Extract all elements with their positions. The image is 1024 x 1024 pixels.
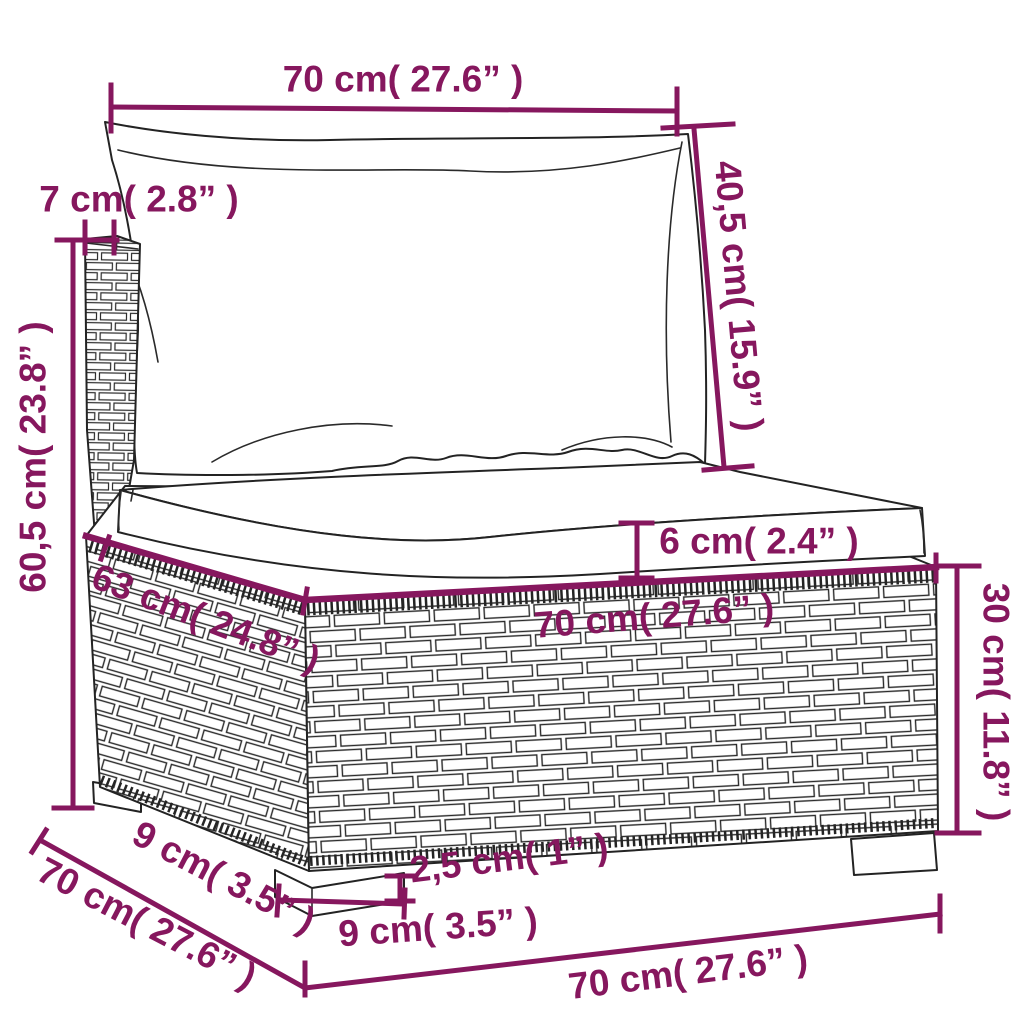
dim-base-height-label: 30 cm( 11.8” ) — [976, 583, 1017, 822]
leg-front-right — [851, 833, 937, 875]
dimension-diagram-svg: 70 cm( 27.6” ) 40,5 cm( 15.9” ) 7 cm( 2.… — [0, 0, 1024, 1024]
dim-back-width-line — [111, 107, 677, 111]
back-cushion — [105, 122, 706, 475]
furniture-illustration — [85, 122, 938, 916]
dim-base-height: 30 cm( 11.8” ) — [937, 566, 1017, 833]
dim-back-width-label: 70 cm( 27.6” ) — [283, 59, 524, 100]
dim-back-thickness-label: 7 cm( 2.8” ) — [39, 179, 238, 220]
dim-total-height-label: 60,5 cm( 23.8” ) — [13, 321, 54, 592]
dim-total-height: 60,5 cm( 23.8” ) — [13, 240, 93, 808]
dim-back-width: 70 cm( 27.6” ) — [111, 59, 677, 135]
dim-cushion-thickness-label: 6 cm( 2.4” ) — [659, 521, 858, 562]
diagram-canvas: 70 cm( 27.6” ) 40,5 cm( 15.9” ) 7 cm( 2.… — [0, 0, 1024, 1024]
back-cushion-body — [105, 122, 706, 475]
dim-width-total-label: 70 cm( 27.6” ) — [566, 937, 810, 1007]
dim-back-height-cap-top — [663, 124, 733, 128]
